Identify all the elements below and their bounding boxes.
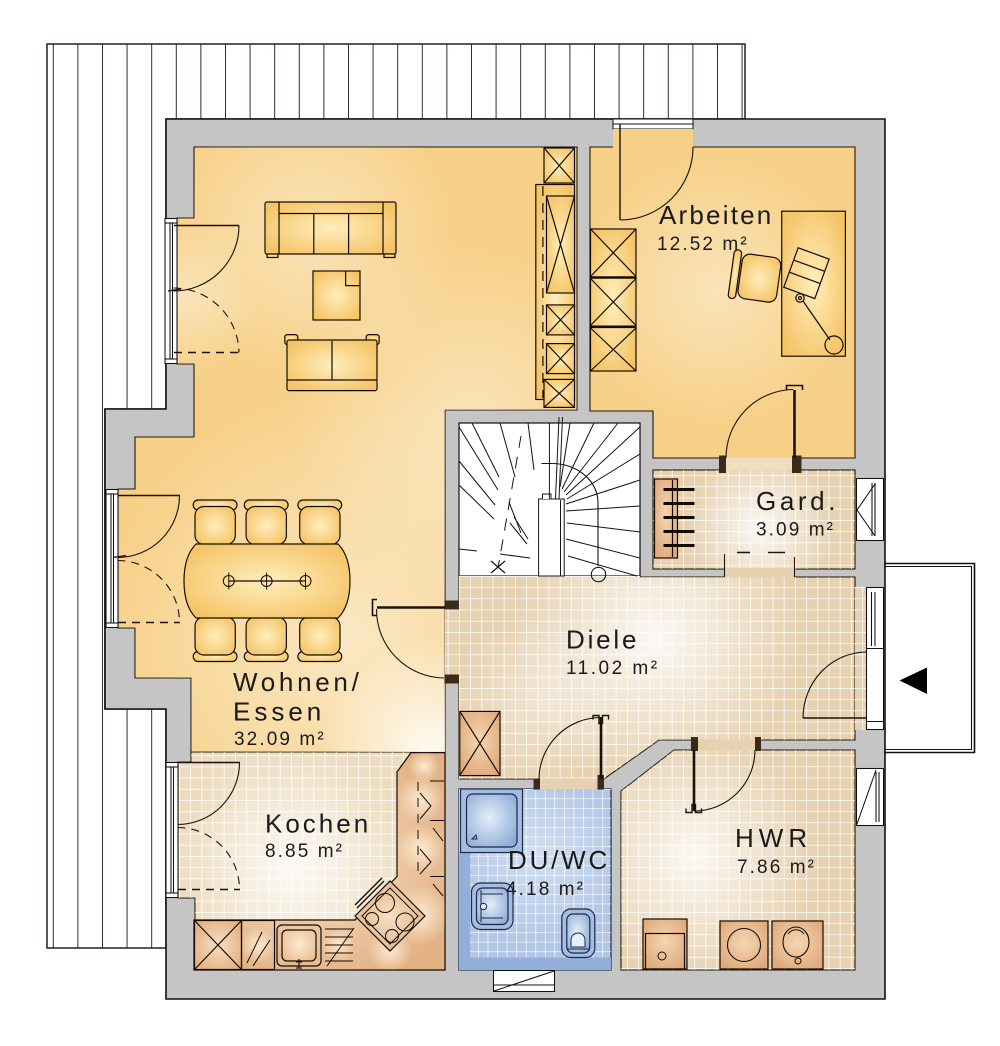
svg-text:DU/WC: DU/WC bbox=[508, 845, 610, 875]
svg-text:Essen: Essen bbox=[233, 697, 325, 727]
svg-text:12.52 m²: 12.52 m² bbox=[657, 234, 749, 255]
svg-text:HWR: HWR bbox=[735, 823, 812, 853]
svg-text:32.09 m²: 32.09 m² bbox=[234, 729, 326, 750]
svg-text:4.18 m²: 4.18 m² bbox=[506, 879, 585, 900]
svg-text:3.09 m²: 3.09 m² bbox=[756, 520, 835, 541]
svg-text:Wohnen/: Wohnen/ bbox=[233, 667, 363, 697]
svg-text:11.02 m²: 11.02 m² bbox=[566, 658, 660, 679]
svg-text:7.86 m²: 7.86 m² bbox=[737, 857, 816, 878]
svg-text:Diele: Diele bbox=[566, 625, 639, 655]
svg-text:Kochen: Kochen bbox=[265, 809, 371, 839]
svg-text:Gard.: Gard. bbox=[756, 486, 839, 516]
svg-text:Arbeiten: Arbeiten bbox=[659, 200, 773, 230]
svg-text:8.85 m²: 8.85 m² bbox=[265, 841, 344, 862]
